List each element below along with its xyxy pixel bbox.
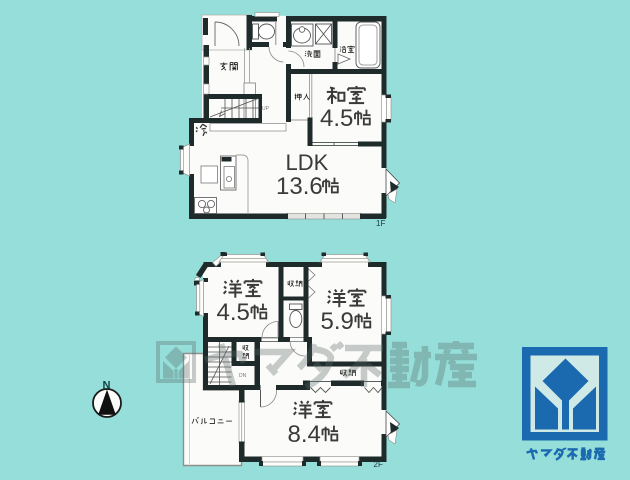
svg-text:UP: UP <box>262 106 270 112</box>
svg-text:LDK: LDK <box>286 150 329 175</box>
svg-text:N: N <box>103 380 111 392</box>
svg-text:4.5: 4.5 <box>217 299 250 326</box>
svg-text:1F: 1F <box>376 219 385 228</box>
svg-text:4.5: 4.5 <box>320 105 353 132</box>
svg-text:13.6: 13.6 <box>276 173 323 200</box>
svg-text:8.4: 8.4 <box>288 421 321 448</box>
svg-text:DN: DN <box>239 373 247 379</box>
svg-text:5.9: 5.9 <box>321 308 354 335</box>
svg-text:2F: 2F <box>374 460 383 469</box>
